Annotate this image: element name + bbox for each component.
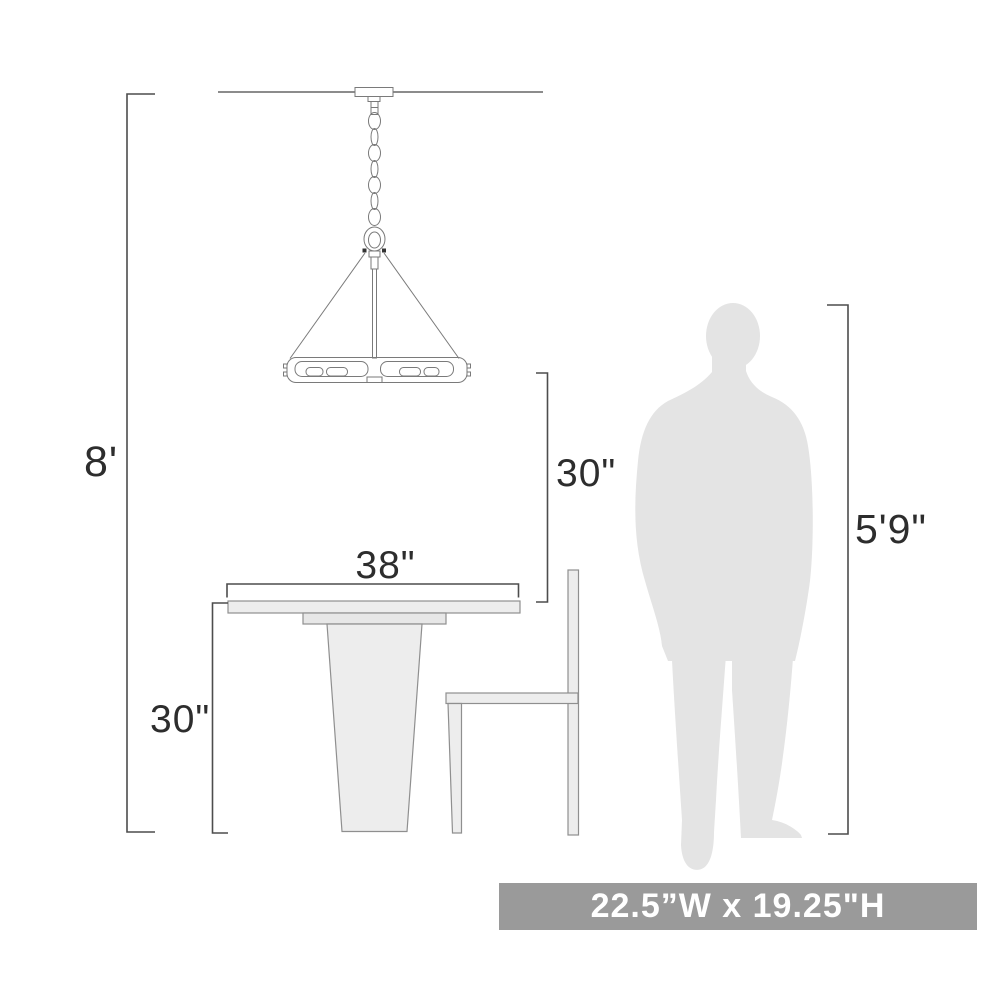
- person-back-leg: [672, 652, 726, 870]
- person-silhouette: [635, 303, 813, 870]
- bulb: [327, 368, 348, 377]
- label-pendant-clearance: 30": [556, 452, 616, 496]
- finial-loop: [364, 227, 385, 251]
- bulb: [424, 368, 439, 377]
- label-person-height: 5'9": [855, 506, 927, 553]
- dim-table-height-30in: [213, 603, 229, 833]
- table-apron: [303, 613, 446, 624]
- scale-diagram: 8' 30" 38" 30" 5'9" 22.5”W x 19.25"H: [0, 0, 1000, 1000]
- chair-front-leg: [448, 704, 462, 834]
- label-table-height: 30": [150, 698, 207, 742]
- dim-clearance-30in: [536, 373, 548, 602]
- fixture-size-banner: 22.5”W x 19.25"H: [499, 883, 977, 930]
- bulb: [400, 368, 421, 377]
- table-top: [228, 601, 520, 613]
- label-table-width: 38": [338, 544, 433, 588]
- label-ceiling-height: 8': [84, 438, 118, 487]
- chain: [369, 113, 381, 226]
- diagram-canvas: [0, 0, 1000, 1000]
- canopy: [355, 88, 393, 97]
- pendant-light-drawing: [284, 88, 471, 383]
- dining-table-drawing: [228, 601, 520, 832]
- bulb: [306, 368, 323, 377]
- table-pedestal: [327, 624, 422, 832]
- person-front-leg: [732, 655, 802, 838]
- light-ring: [284, 358, 471, 383]
- dim-person-height-5ft9: [827, 305, 848, 834]
- chair-seat: [446, 693, 578, 704]
- person-torso: [635, 371, 813, 661]
